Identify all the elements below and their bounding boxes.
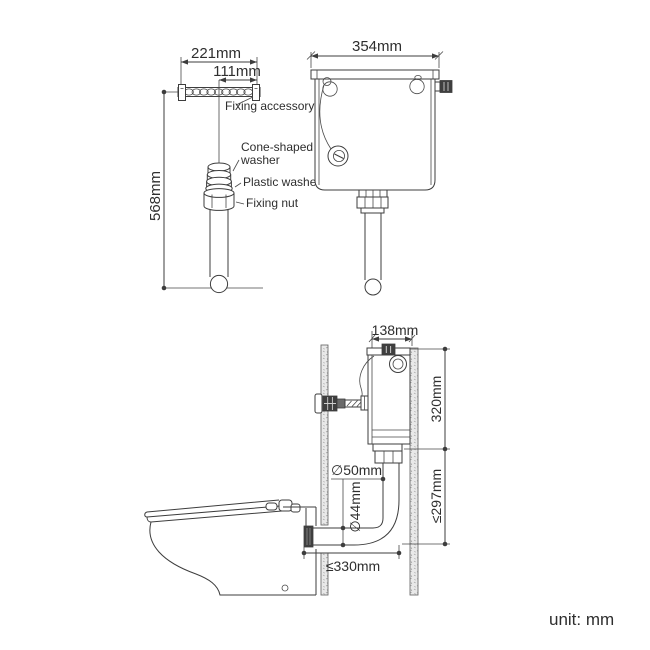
seat-bumper: [266, 503, 277, 510]
dim-flush-pipe-diameter: ∅50mm: [331, 462, 382, 478]
label-fixing-nut: Fixing nut: [246, 196, 299, 210]
unit-note: unit: mm: [549, 610, 614, 629]
seat-hinge-knob: [291, 504, 300, 512]
toilet-cistern-installation-diagram: 221mm 111mm: [0, 0, 650, 650]
outlet-pipe-end: [365, 279, 381, 295]
cistern-lid: [311, 70, 439, 79]
seat-hinge: [279, 500, 292, 511]
dim-cistern-height: 320mm: [428, 376, 444, 423]
dim-inlet-diameter: ∅44mm: [347, 481, 363, 532]
label-plastic-washer: Plastic washer: [243, 175, 320, 189]
label-cone-washer-1: Cone-shaped: [241, 140, 313, 154]
dimension-111: 111mm: [213, 63, 261, 83]
flush-valve-knob: [328, 146, 348, 166]
inlet-fitting: [382, 344, 395, 355]
dim-cistern-width: 354mm: [352, 38, 402, 55]
flush-button-cap: [315, 394, 322, 413]
pipe-opening: [208, 163, 230, 171]
dim-strip-half-width: 111mm: [213, 63, 261, 80]
strip-bolt-left: [179, 85, 186, 101]
flush-button-stub: [337, 399, 345, 408]
label-cone-washer-2: washer: [240, 153, 280, 167]
pan-inlet-connector: [304, 526, 313, 547]
dim-pipe-length: 568mm: [147, 171, 164, 221]
dim-pan-setout: ≤330mm: [326, 558, 380, 574]
cistern-outlet-nut: [373, 444, 402, 463]
label-fixing-accessory: Fixing accessory: [225, 99, 314, 113]
back-wall: [410, 348, 418, 595]
cistern-valve-knob: [390, 356, 407, 373]
cistern-body: [311, 70, 452, 190]
pipe-outlet: [210, 275, 227, 292]
side-inlet-connector: [435, 81, 452, 93]
dim-flush-pipe-drop: ≤297mm: [428, 469, 444, 523]
dim-cistern-depth: 138mm: [372, 322, 419, 338]
front-wall-upper: [321, 345, 328, 525]
dim-strip-width: 221mm: [191, 45, 241, 62]
